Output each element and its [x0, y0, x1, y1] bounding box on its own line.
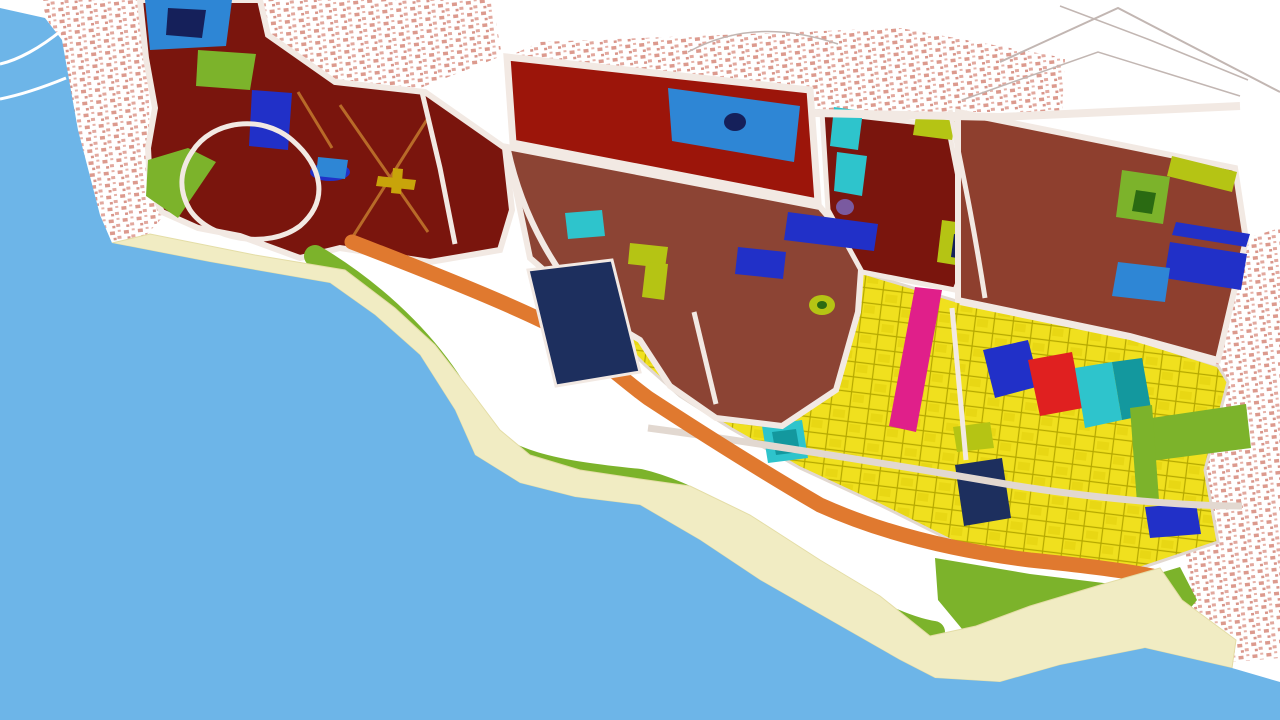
olive-L-b: [642, 262, 668, 300]
blue-parcel-southeast: [1145, 503, 1201, 538]
olive-parcel-yellowzone: [953, 422, 994, 452]
green-square-east-core: [1132, 190, 1156, 214]
yellow-marking-v: [391, 168, 403, 194]
zoning-map-image: [0, 0, 1280, 720]
navy-parcel-south: [955, 458, 1011, 526]
cyan-strip-mid-b: [834, 152, 867, 196]
navy-dot-superblock: [724, 113, 746, 131]
screenshot-stage: [0, 0, 1280, 720]
purple-dot-mid: [836, 199, 854, 215]
royal-parcel-nw: [249, 90, 292, 150]
green-parcel-nw: [196, 50, 256, 90]
blue-parcel-top-core: [166, 8, 206, 38]
olive-dot-core: [817, 301, 827, 309]
cyan-parcel-central: [565, 210, 605, 239]
blue-parcel-small-b: [316, 157, 348, 179]
royal-parcel-central: [735, 247, 786, 279]
blue-parcel-east: [1112, 262, 1170, 302]
map-layers: [0, 0, 1280, 720]
